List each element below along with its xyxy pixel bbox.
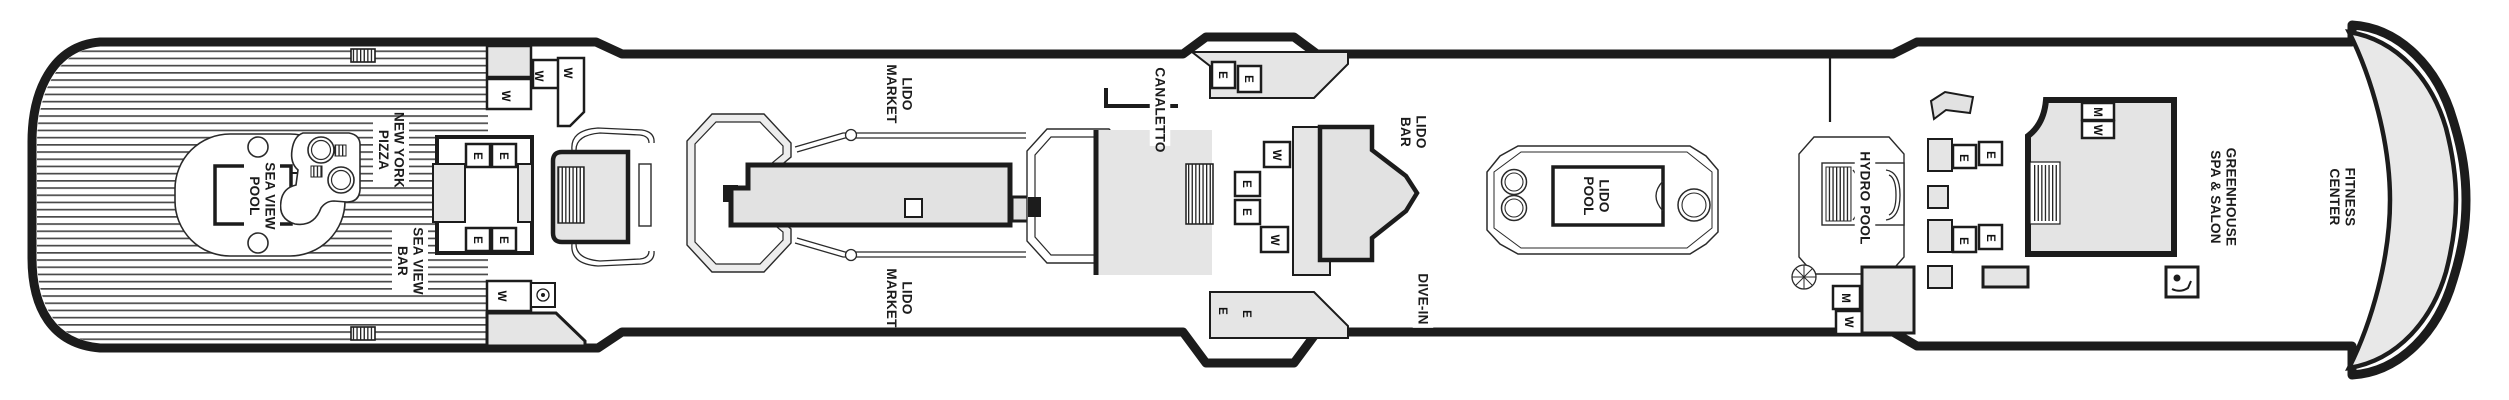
venue-label-text: FITNESSCENTER: [2327, 168, 2358, 227]
venue-label-greenhouse-spa-salon: GREENHOUSESPA & SALON: [2205, 148, 2241, 247]
room-letter-e: E: [1957, 237, 1969, 245]
venue-label-lido-market-top: LIDOMARKET: [881, 64, 917, 124]
room-letter-e: E: [497, 152, 509, 160]
salon-station: [2166, 267, 2198, 297]
rail-post: [846, 130, 857, 141]
salon-chair-icon: [2174, 275, 2181, 282]
lobby-core-gray: [1928, 186, 1948, 208]
whirlpool: [1678, 189, 1710, 221]
whirlpool-steps: [311, 166, 322, 177]
room-letter-e: E: [1240, 180, 1252, 188]
room-letter-w: W: [1270, 150, 1282, 161]
venue-label-sea-view-bar: SEA VIEWBAR: [392, 227, 428, 295]
deck-vent-bottom-hatch: [351, 327, 375, 340]
room-letter-w: W: [499, 91, 511, 102]
market-counter: [731, 165, 1010, 225]
kiosk-icon-dot: [541, 293, 545, 297]
room-letter-w: W: [532, 71, 544, 82]
room-letter-e: E: [1242, 75, 1254, 83]
venue-label-text: DIVE-IN: [1416, 273, 1431, 324]
deck-post: [248, 137, 268, 157]
lobby-core-gray: [433, 164, 465, 222]
room-letter-w: W: [561, 68, 573, 79]
deck-vent-top-hatch: [351, 49, 375, 62]
room-letter-w: W: [1842, 317, 1854, 328]
venue-label-dive-in: DIVE-IN: [1413, 270, 1434, 328]
room-letter-e: E: [471, 236, 483, 244]
room-letter-e: E: [1240, 310, 1252, 318]
room-letter-m: M: [1839, 293, 1851, 303]
venue-label-lido-pool: LIDOPOOL: [1578, 176, 1614, 215]
venue-label-sea-view-pool: SEA VIEWPOOL: [244, 162, 280, 230]
venue-label-lido-bar: LIDOBAR: [1395, 114, 1431, 150]
deck-post: [248, 233, 268, 253]
venue-label-text: CANALETTO: [1153, 67, 1168, 152]
room-letter-w: W: [1268, 235, 1280, 246]
lobby-core-gray: [1928, 266, 1952, 288]
venue-label-text: GREENHOUSESPA & SALON: [2208, 148, 2239, 247]
spa-back-room: [1862, 267, 1914, 333]
room-letter-e: E: [471, 152, 483, 160]
room-letter-w: W: [2091, 125, 2103, 136]
whirlpool-steps: [335, 145, 346, 156]
stairs-hatch: [1186, 164, 1213, 224]
hydro-pool-hatch: [1826, 167, 1851, 221]
lobby-core-gray: [1928, 220, 1952, 252]
stairs-hatch: [2033, 165, 2057, 221]
room-letter-e: E: [497, 236, 509, 244]
lido-deck-plan: SEA VIEWPOOLNEW YORKPIZZASEA VIEWBARLIDO…: [0, 0, 2509, 400]
venue-label-lido-market-bottom: LIDOMARKET: [881, 268, 917, 328]
room-letter-e: E: [1216, 71, 1228, 79]
washroom: [487, 281, 531, 311]
room-letter-e: E: [1984, 151, 1996, 159]
deck-plan-page: SEA VIEWPOOLNEW YORKPIZZASEA VIEWBARLIDO…: [0, 0, 2509, 400]
room-letter-e: E: [1984, 234, 1996, 242]
venue-label-new-york-pizza: NEW YORKPIZZA: [373, 112, 409, 188]
lobby-core-gray: [518, 164, 532, 222]
venue-label-canaletto: CANALETTO: [1150, 67, 1171, 152]
venue-label-text: LIDOPOOL: [1581, 176, 1612, 215]
room-letter-w: W: [495, 291, 507, 302]
room-letter-e: E: [1957, 154, 1969, 162]
venue-label-text: LIDOBAR: [1398, 115, 1429, 148]
room-letter-m: M: [2091, 107, 2103, 117]
stairs-hatch: [558, 167, 584, 223]
service-counter: [639, 164, 651, 226]
service-counter: [1983, 267, 2028, 287]
venue-label-fitness-center: FITNESSCENTER: [2324, 168, 2360, 227]
venue-label-hydro-pool: HYDRO POOL: [1855, 151, 1876, 244]
lobby-core-gray: [1928, 139, 1952, 171]
room-letter-e: E: [1216, 307, 1228, 315]
room-letter-e: E: [1240, 208, 1252, 216]
counter-station: [905, 199, 922, 217]
aft-room-gray: [487, 46, 531, 77]
rail-post: [846, 250, 857, 261]
venue-label-text: HYDRO POOL: [1858, 151, 1873, 244]
buffet-equipment: [1028, 197, 1041, 217]
